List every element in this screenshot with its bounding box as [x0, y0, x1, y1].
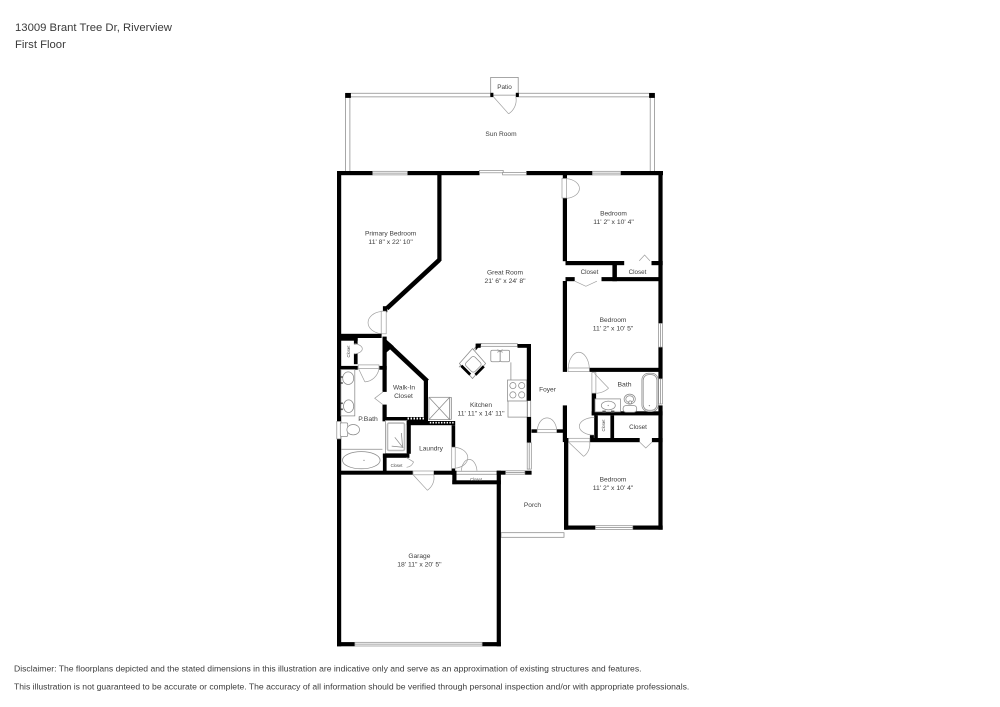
svg-text:Walk-In: Walk-In	[393, 385, 415, 392]
svg-text:Kitchen: Kitchen	[470, 402, 492, 409]
svg-text:Disclaimer: The floorplans dep: Disclaimer: The floorplans depicted and …	[14, 663, 642, 673]
svg-text:Foyer: Foyer	[539, 387, 557, 394]
svg-text:Closet: Closet	[581, 269, 599, 276]
svg-text:18' 11" x 20' 5": 18' 11" x 20' 5"	[397, 561, 442, 568]
svg-text:Closet: Closet	[394, 393, 413, 400]
svg-text:Closet: Closet	[629, 269, 647, 276]
svg-text:Primary Bedroom: Primary Bedroom	[365, 231, 417, 238]
svg-text:Bedroom: Bedroom	[600, 317, 627, 324]
svg-text:11' 2" x 10' 4": 11' 2" x 10' 4"	[593, 485, 634, 492]
svg-text:Porch: Porch	[524, 502, 542, 509]
svg-text:Closet: Closet	[470, 477, 483, 482]
svg-text:21' 6" x 24' 8": 21' 6" x 24' 8"	[484, 278, 526, 285]
svg-text:Closet: Closet	[601, 419, 606, 432]
svg-text:This illustration is not guara: This illustration is not guaranteed to b…	[14, 681, 689, 691]
svg-text:11' 11" x 14' 11": 11' 11" x 14' 11"	[457, 410, 505, 417]
svg-text:P.Bath: P.Bath	[358, 416, 378, 423]
svg-text:Closet: Closet	[346, 345, 351, 358]
svg-text:13009 Brant Tree Dr, Riverview: 13009 Brant Tree Dr, Riverview	[15, 22, 173, 34]
svg-text:Closet: Closet	[629, 424, 647, 431]
svg-text:Sun Room: Sun Room	[485, 131, 517, 138]
svg-text:Garage: Garage	[408, 553, 430, 560]
svg-text:Bedroom: Bedroom	[600, 211, 627, 218]
svg-text:11' 8" x 22' 10": 11' 8" x 22' 10"	[368, 239, 413, 246]
svg-text:Closet: Closet	[391, 463, 404, 468]
svg-text:11' 2" x 10' 4": 11' 2" x 10' 4"	[593, 219, 634, 226]
svg-text:11' 2" x 10' 5": 11' 2" x 10' 5"	[593, 326, 634, 333]
svg-text:First Floor: First Floor	[15, 39, 66, 51]
svg-text:Bath: Bath	[618, 382, 632, 389]
svg-text:Patio: Patio	[497, 84, 512, 91]
svg-text:Laundry: Laundry	[419, 446, 444, 453]
svg-text:Great Room: Great Room	[487, 270, 523, 277]
svg-text:Bedroom: Bedroom	[600, 477, 627, 484]
